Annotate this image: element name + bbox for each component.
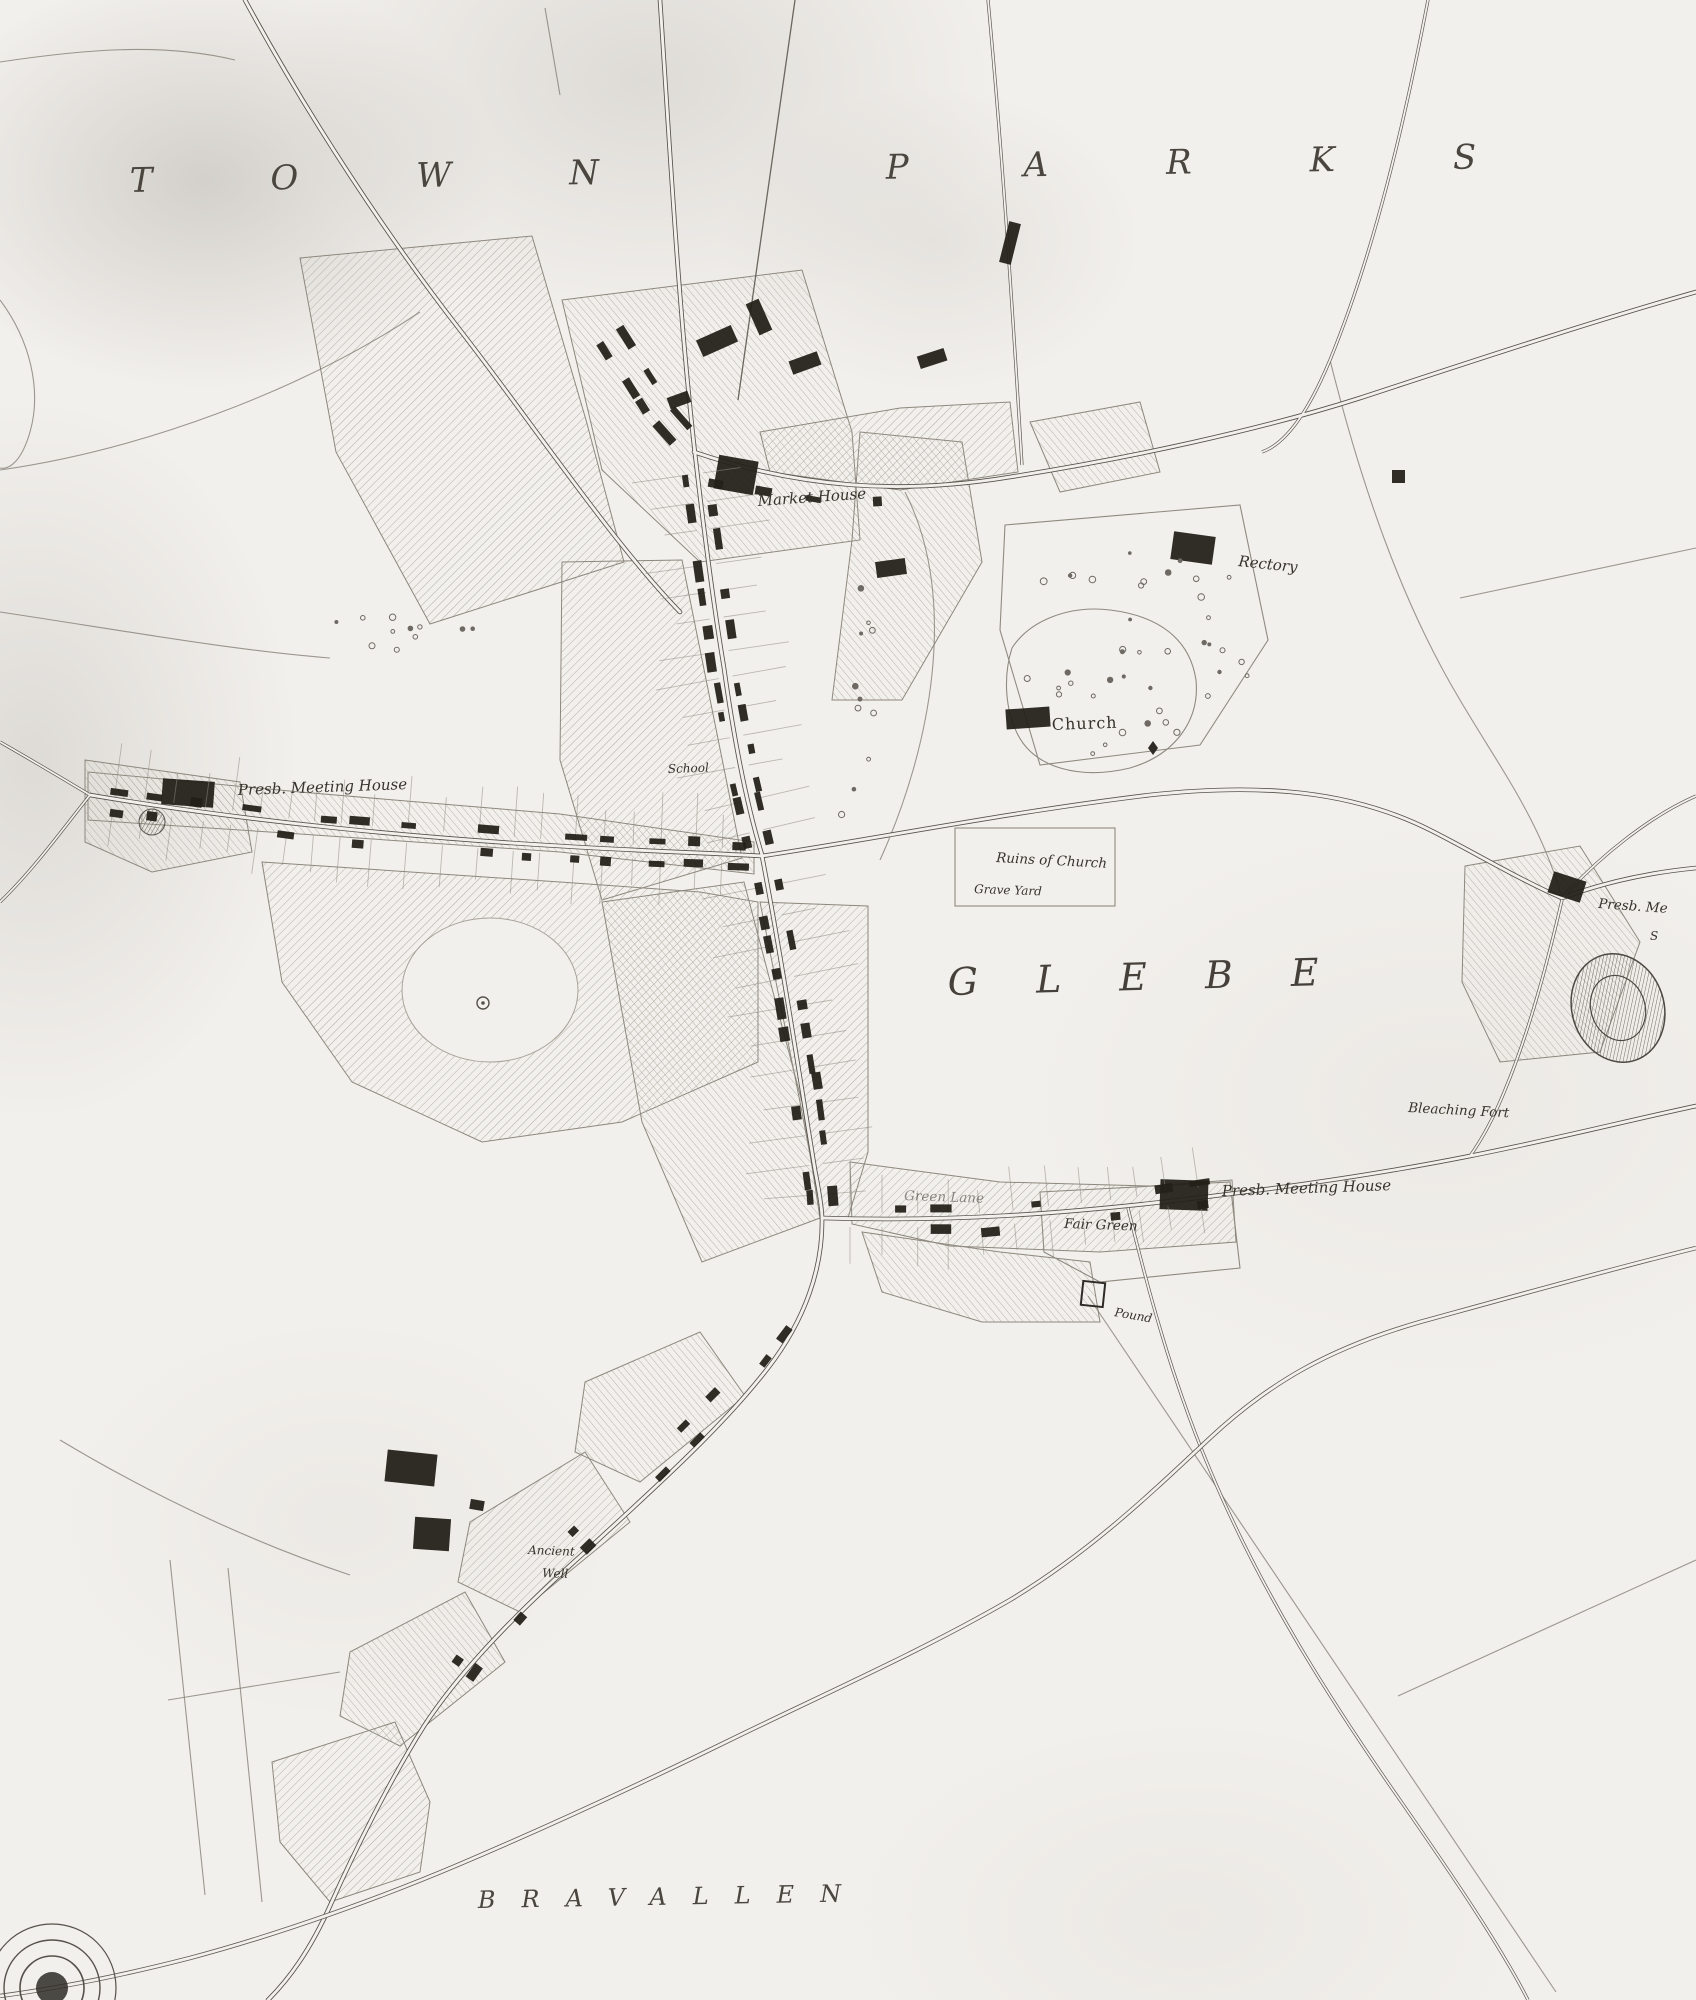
street-building bbox=[895, 1205, 906, 1212]
east-edge-fragment-label: S bbox=[1650, 929, 1658, 943]
field-line bbox=[0, 49, 235, 62]
field-line bbox=[60, 1440, 350, 1575]
street-building bbox=[401, 822, 416, 829]
tree-dot bbox=[867, 757, 871, 761]
southwest-building bbox=[469, 1499, 485, 1511]
tree-dot bbox=[418, 625, 422, 629]
street-building bbox=[791, 1106, 802, 1121]
street-building bbox=[352, 839, 364, 848]
roadside-building bbox=[1392, 470, 1405, 483]
tree-dot bbox=[852, 787, 857, 792]
plot-divider bbox=[729, 642, 789, 651]
meeting-house-west bbox=[161, 778, 215, 808]
southwest-building bbox=[384, 1449, 437, 1486]
tree-dot bbox=[470, 626, 475, 631]
field-line bbox=[168, 1672, 340, 1700]
south-lane bbox=[1128, 1208, 1528, 2000]
plot-divider bbox=[743, 725, 801, 736]
street-building bbox=[931, 1224, 952, 1234]
tree-dot bbox=[1128, 618, 1132, 622]
tree-dot bbox=[855, 705, 861, 711]
street-building bbox=[734, 683, 742, 697]
tree-dot bbox=[1122, 674, 1126, 678]
tree-dot bbox=[1120, 649, 1125, 654]
tree-dot bbox=[389, 614, 395, 620]
street-building bbox=[321, 816, 337, 824]
street-building bbox=[797, 999, 808, 1010]
plot-divider bbox=[763, 818, 815, 830]
tree-dot bbox=[1040, 578, 1047, 585]
street-building bbox=[570, 855, 579, 863]
street-building bbox=[725, 619, 736, 639]
street-building bbox=[708, 504, 719, 517]
field-line bbox=[0, 612, 330, 658]
street-building bbox=[732, 842, 746, 851]
tree-dot bbox=[1198, 594, 1205, 601]
plot-divider bbox=[252, 828, 258, 873]
presb-meeting-house-se-label: Presb. Meeting House bbox=[1221, 1176, 1392, 1200]
street-building bbox=[1197, 1200, 1209, 1210]
tree-dot bbox=[1068, 573, 1072, 577]
tree-dot bbox=[460, 626, 466, 632]
field-line bbox=[1398, 1560, 1696, 1696]
field-line bbox=[228, 1568, 262, 1902]
plot-divider bbox=[756, 786, 809, 799]
tree-dot bbox=[1128, 551, 1132, 555]
plot-divider bbox=[724, 611, 766, 617]
tree-dot bbox=[1057, 686, 1061, 690]
street-building bbox=[349, 816, 370, 826]
field-plot bbox=[272, 1722, 430, 1902]
street-building bbox=[705, 652, 717, 673]
tree-dot bbox=[1217, 670, 1221, 674]
tree-dot bbox=[871, 710, 877, 716]
street-building bbox=[1031, 1201, 1041, 1208]
street-building bbox=[702, 625, 714, 640]
ancient-well-line1-label: Ancient bbox=[527, 1543, 575, 1559]
fair-green-label: Fair Green bbox=[1063, 1216, 1138, 1235]
street-building bbox=[688, 836, 700, 846]
tree-dot bbox=[1220, 648, 1225, 653]
tree-dot bbox=[1138, 651, 1142, 655]
tree-dot bbox=[1065, 669, 1071, 675]
street-building bbox=[981, 1226, 1000, 1237]
street-building bbox=[146, 811, 158, 822]
street-building bbox=[649, 861, 665, 868]
street-building bbox=[728, 863, 749, 871]
street-building bbox=[480, 848, 493, 857]
field-line bbox=[1330, 360, 1562, 898]
field-line bbox=[1460, 548, 1696, 598]
street-building bbox=[930, 1204, 951, 1212]
tree-dot bbox=[1157, 708, 1163, 714]
tree-dot bbox=[839, 811, 845, 817]
street-building bbox=[684, 859, 704, 868]
tree-dot bbox=[1103, 743, 1107, 747]
street-building bbox=[747, 744, 755, 755]
tree-dot bbox=[408, 626, 414, 632]
plot-divider bbox=[475, 848, 478, 879]
road-fill bbox=[1128, 1208, 1528, 2000]
church-label: Church bbox=[1051, 713, 1117, 734]
tree-dot bbox=[1165, 569, 1172, 576]
church-symbol bbox=[1148, 741, 1158, 755]
street-building bbox=[600, 856, 611, 866]
townland-bravallen-label: BRAVALLEN bbox=[477, 1879, 868, 1914]
street-building bbox=[873, 496, 882, 506]
rectory-label: Rectory bbox=[1237, 552, 1299, 576]
tree-dot bbox=[1239, 659, 1244, 664]
roadside-building bbox=[917, 348, 948, 369]
street-building bbox=[762, 830, 774, 846]
corner-mound bbox=[0, 1924, 116, 2000]
market-house-building bbox=[713, 455, 758, 495]
tree-dot bbox=[1091, 694, 1095, 698]
townland-glebe-label: GLEBE bbox=[947, 949, 1377, 1004]
tree-dot bbox=[413, 635, 418, 640]
tree-dot bbox=[1193, 576, 1199, 582]
tree-dot bbox=[858, 697, 863, 702]
tree-dot bbox=[858, 585, 865, 592]
field-plot bbox=[1030, 402, 1160, 492]
tree-dot bbox=[1024, 676, 1030, 682]
street-building bbox=[522, 853, 532, 861]
street-building bbox=[733, 797, 745, 816]
field-line bbox=[0, 300, 35, 468]
street-building bbox=[718, 712, 725, 722]
tree-dot bbox=[1206, 694, 1211, 699]
street-building bbox=[720, 588, 730, 599]
tree-dot bbox=[1091, 752, 1095, 756]
pond bbox=[402, 918, 578, 1062]
plot-divider bbox=[749, 759, 783, 765]
street-building bbox=[774, 879, 784, 891]
green-lane-label: Green Lane bbox=[904, 1188, 984, 1207]
street-building bbox=[754, 791, 764, 810]
presb-meeting-house-west-label: Presb. Meeting House bbox=[237, 775, 408, 799]
scanned-map-page: TOWN PARKSGLEBEBRAVALLENMarket HouseRect… bbox=[0, 0, 1696, 2000]
street-building bbox=[697, 588, 706, 606]
tree-dot bbox=[1165, 649, 1171, 655]
pound-label: Pound bbox=[1112, 1305, 1153, 1326]
road-fill bbox=[0, 795, 90, 902]
grave-yard-label: Grave Yard bbox=[974, 882, 1042, 898]
tree-dot bbox=[1069, 681, 1073, 685]
street-building bbox=[754, 882, 764, 895]
plot-divider bbox=[733, 667, 786, 677]
tree-dot bbox=[1202, 640, 1207, 645]
ruins-of-church-label: Ruins of Church bbox=[995, 850, 1108, 872]
street-building bbox=[649, 838, 665, 844]
street-building bbox=[738, 704, 749, 722]
school-label: School bbox=[668, 761, 710, 776]
field-plot bbox=[575, 1332, 745, 1482]
tree-dot bbox=[1227, 575, 1231, 579]
tree-dot bbox=[1107, 677, 1113, 683]
townland-town-parks-label: TOWN PARKS bbox=[129, 135, 1594, 201]
tree-dot bbox=[1144, 720, 1151, 727]
tree-dot bbox=[391, 630, 395, 634]
southwest-building bbox=[413, 1517, 451, 1551]
street-building bbox=[714, 682, 724, 703]
tree-dot bbox=[859, 632, 863, 636]
plot-divider bbox=[776, 874, 826, 884]
bleaching-fort-label: Bleaching Fort bbox=[1407, 1100, 1510, 1121]
tree-dot bbox=[1178, 558, 1183, 563]
tree-dot bbox=[1207, 616, 1211, 620]
tree-dot bbox=[1148, 686, 1152, 690]
road-fill bbox=[0, 742, 90, 795]
tree-dot bbox=[1207, 642, 1211, 646]
tree-dot bbox=[1119, 729, 1126, 736]
roadside-building bbox=[999, 221, 1021, 265]
church-building bbox=[1005, 706, 1050, 729]
street-building bbox=[693, 560, 705, 583]
street-building bbox=[478, 824, 500, 834]
field-line bbox=[170, 1560, 205, 1895]
field-line bbox=[545, 8, 560, 95]
tree-dot bbox=[369, 643, 375, 649]
tree-dot bbox=[1141, 579, 1147, 585]
tree-dot bbox=[1056, 692, 1061, 697]
tree-dot bbox=[361, 616, 366, 621]
tree-dot bbox=[334, 620, 338, 624]
tree-dot bbox=[1245, 674, 1249, 678]
ancient-well-line2-label: Well bbox=[542, 1566, 569, 1581]
street-building bbox=[806, 1190, 814, 1205]
tree-dot bbox=[852, 683, 859, 690]
street-building bbox=[753, 777, 762, 793]
street-building bbox=[827, 1185, 839, 1206]
street-building bbox=[600, 836, 614, 843]
field-line bbox=[1088, 1296, 1556, 1992]
street-building bbox=[513, 1612, 527, 1626]
tree-dot bbox=[394, 647, 399, 652]
street-building bbox=[730, 783, 738, 796]
tree-dot bbox=[1174, 729, 1180, 735]
tree-dot bbox=[1089, 576, 1096, 583]
well-marker-dot bbox=[481, 1001, 485, 1005]
rectory-building bbox=[1170, 531, 1215, 565]
town-plan-map: TOWN PARKSGLEBEBRAVALLENMarket HouseRect… bbox=[0, 0, 1696, 2000]
tree-dot bbox=[1163, 720, 1169, 726]
street-building bbox=[190, 797, 203, 808]
